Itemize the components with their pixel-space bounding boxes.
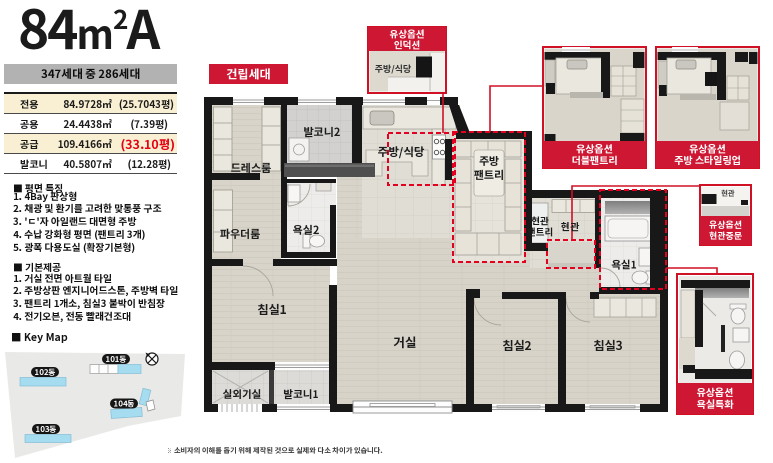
svg-text:※ 소비자의 이해를 돕기 위해 제작된 것으로 실제와 다: ※ 소비자의 이해를 돕기 위해 제작된 것으로 실제와 다소 차이가 있습니다… (168, 446, 383, 456)
svg-text:현관중문: 현관중문 (709, 229, 742, 242)
svg-text:현관: 현관 (721, 188, 735, 199)
svg-text:욕실특화: 욕실특화 (697, 396, 735, 411)
svg-text:102동: 102동 (35, 367, 56, 378)
svg-text:발코니2: 발코니2 (304, 124, 341, 140)
svg-text:현관: 현관 (561, 219, 580, 234)
svg-text:104동: 104동 (114, 398, 135, 409)
svg-text:주방/식당: 주방/식당 (378, 144, 425, 160)
svg-text:팬트리: 팬트리 (474, 167, 504, 183)
svg-text:거실: 거실 (393, 332, 416, 351)
svg-text:발코니1: 발코니1 (283, 387, 318, 402)
svg-text:침실1: 침실1 (257, 301, 286, 318)
svg-text:파우더룸: 파우더룸 (220, 226, 260, 242)
svg-text:드레스룸: 드레스룸 (231, 160, 271, 176)
svg-text:욕실2: 욕실2 (293, 222, 320, 238)
svg-text:103동: 103동 (36, 424, 57, 435)
svg-text:침실3: 침실3 (593, 337, 622, 354)
svg-text:101동: 101동 (106, 354, 127, 365)
svg-text:건립세대: 건립세대 (226, 66, 270, 83)
svg-text:주방 스타일링업: 주방 스타일링업 (674, 152, 741, 167)
svg-text:더블팬트리: 더블팬트리 (572, 152, 618, 167)
svg-text:팬트리: 팬트리 (527, 225, 553, 239)
svg-text:침실2: 침실2 (502, 337, 531, 354)
svg-text:주방/식당: 주방/식당 (375, 62, 412, 75)
svg-text:실외기실: 실외기실 (223, 387, 262, 402)
svg-text:욕실1: 욕실1 (611, 258, 637, 273)
svg-text:인덕션: 인덕션 (394, 38, 420, 52)
